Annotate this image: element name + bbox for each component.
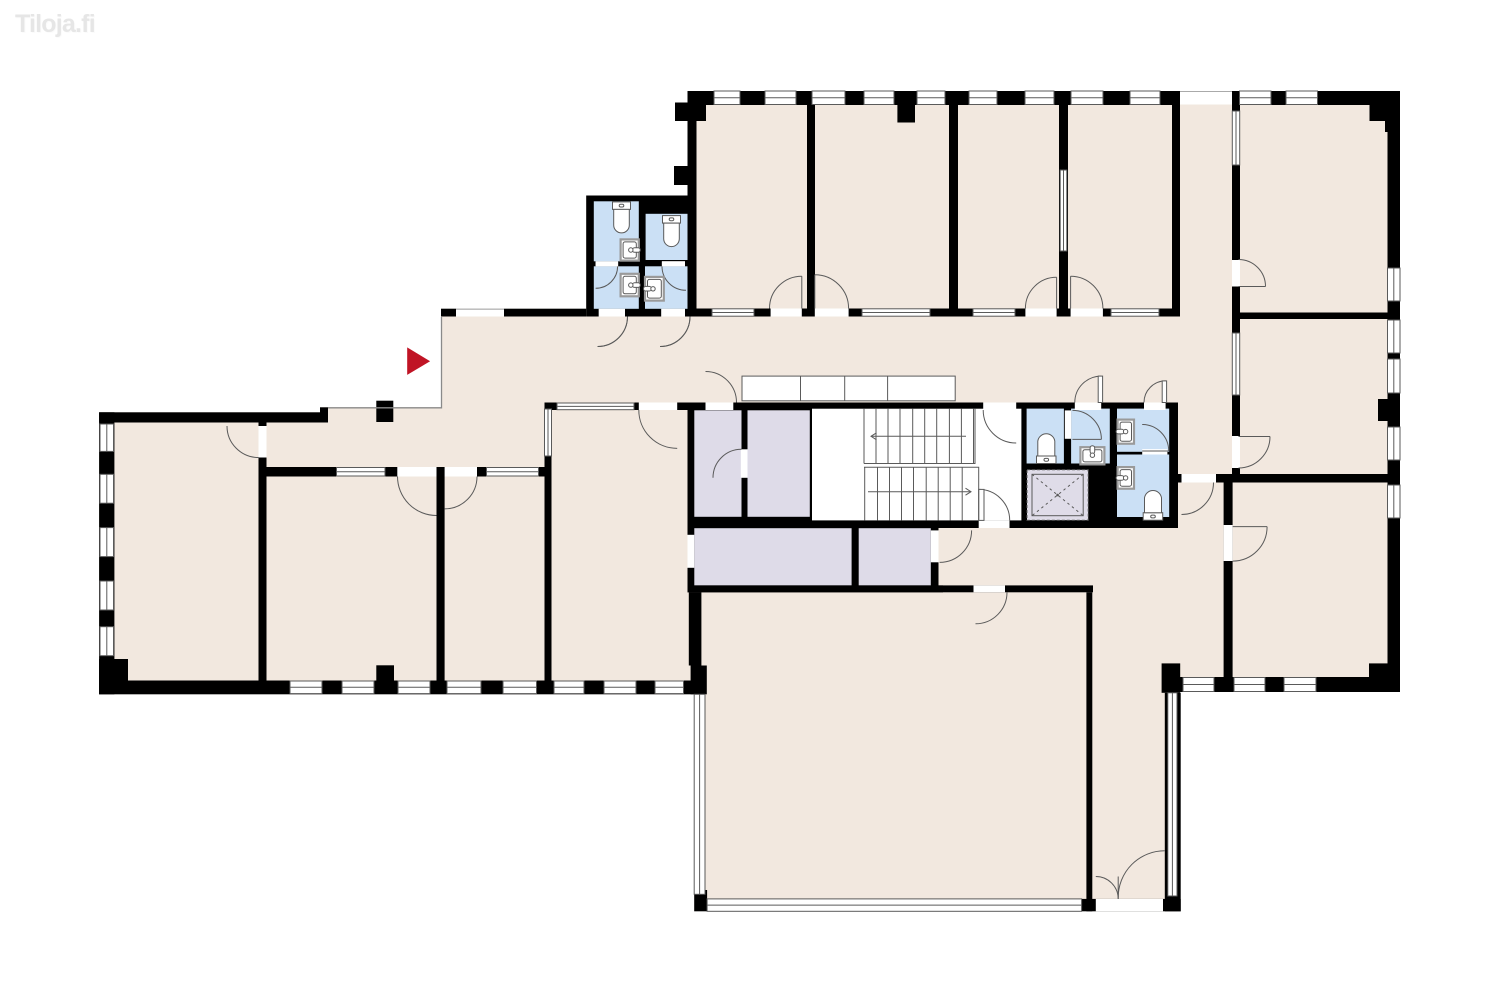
svg-text:Tiloja.fi: Tiloja.fi: [15, 10, 95, 38]
